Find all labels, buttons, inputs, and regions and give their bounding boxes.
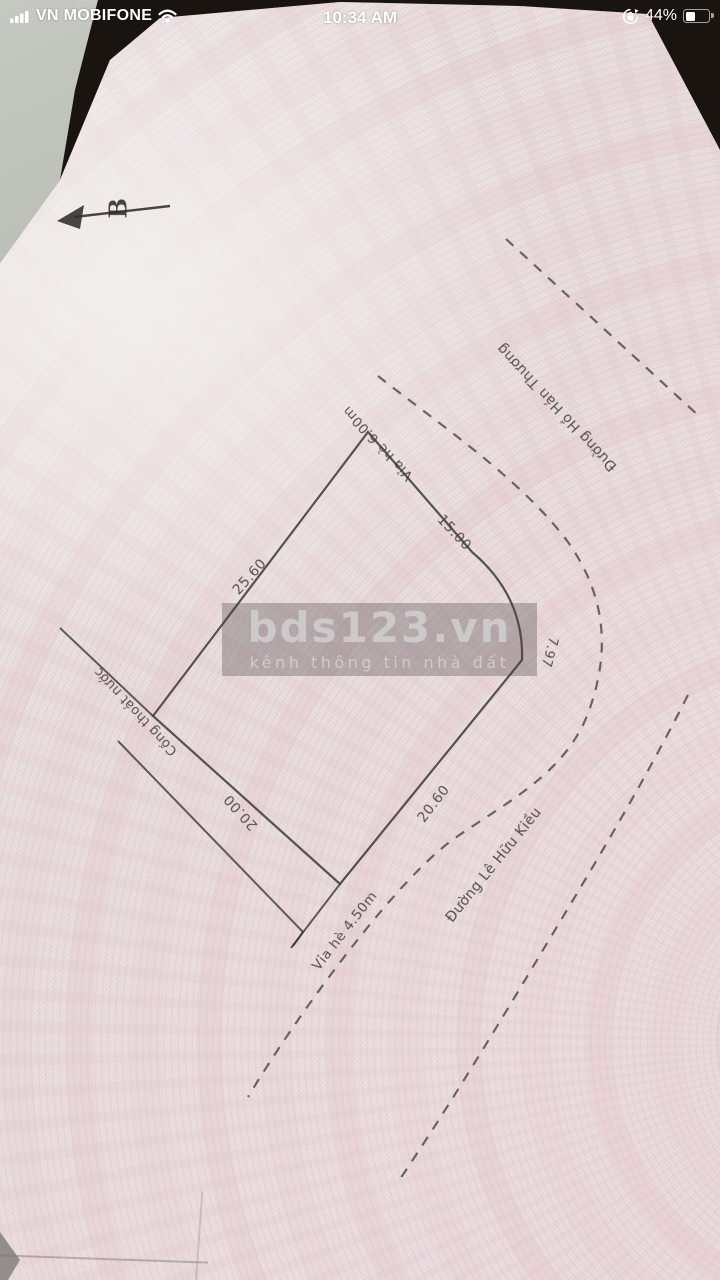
battery-icon	[683, 9, 710, 23]
wifi-icon	[158, 9, 177, 23]
north-arrow-head	[57, 205, 84, 229]
signal-bars-icon	[10, 10, 30, 23]
carrier-label: VN MOBIFONE	[36, 7, 152, 25]
battery-percent: 44%	[645, 7, 677, 25]
status-bar-left: VN MOBIFONE	[10, 7, 177, 25]
watermark-subtitle: kênh thông tin nhà đất	[250, 653, 510, 672]
status-bar: VN MOBIFONE 10:34 AM 44%	[0, 0, 720, 36]
rotation-lock-icon	[622, 8, 639, 25]
drainage-line	[118, 741, 303, 946]
certificate-photo: B 25.60 15.00 7.97 20.60 20.00 Vỉa hè 6.…	[0, 0, 720, 1280]
watermark-title: bds123.vn	[247, 607, 511, 649]
north-label: B	[104, 198, 133, 219]
status-bar-right: 44%	[622, 7, 710, 25]
watermark-band: bds123.vn kênh thông tin nhà đất	[222, 603, 537, 676]
battery-fill	[686, 12, 695, 21]
road-edge-dashed-inner	[248, 376, 602, 1097]
battery-nub	[711, 13, 714, 18]
road-edge-dashed-outer-bottom	[398, 695, 688, 1182]
clock: 10:34 AM	[323, 8, 397, 28]
